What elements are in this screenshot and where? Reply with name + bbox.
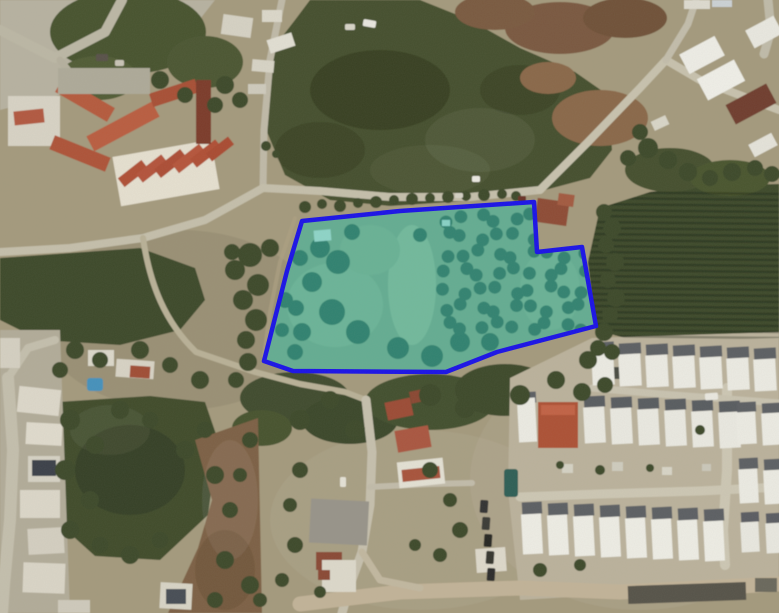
- grain-texture: [0, 0, 779, 613]
- satellite-image: [0, 0, 779, 613]
- satellite-map-view: [0, 0, 779, 613]
